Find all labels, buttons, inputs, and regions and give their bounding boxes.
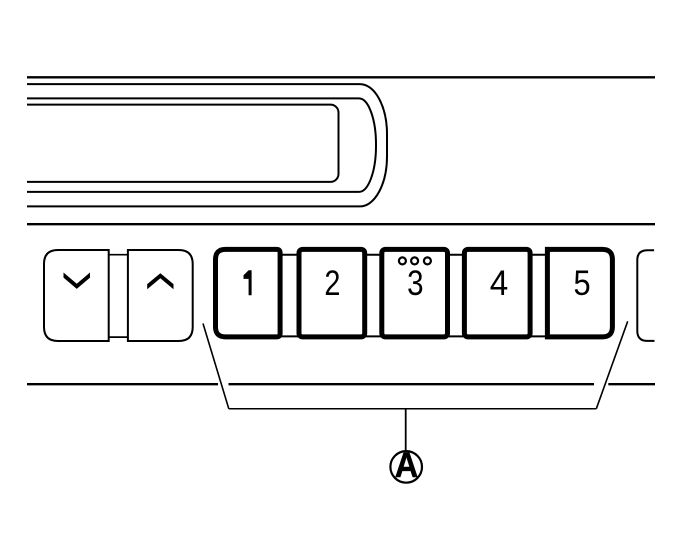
svg-text:3: 3 [407, 264, 423, 303]
svg-text:2: 2 [324, 264, 340, 303]
svg-text:4: 4 [490, 264, 508, 303]
svg-text:5: 5 [573, 263, 590, 302]
svg-text:A: A [395, 446, 419, 485]
